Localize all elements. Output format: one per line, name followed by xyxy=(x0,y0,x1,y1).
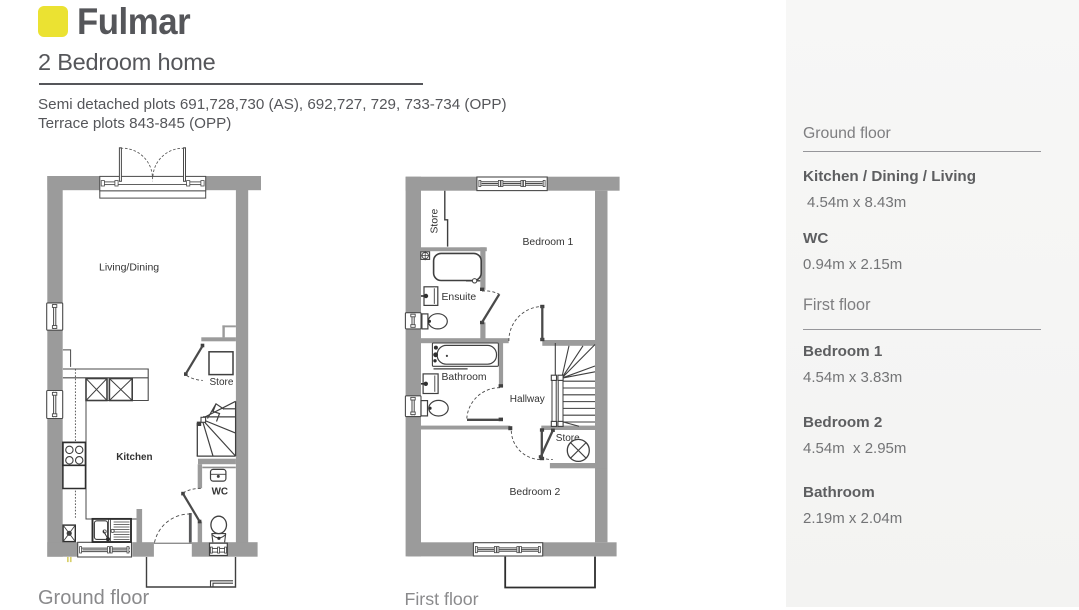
svg-text:WC: WC xyxy=(212,487,228,498)
svg-text:Store: Store xyxy=(210,377,234,388)
svg-text:Living/Dining: Living/Dining xyxy=(99,261,159,273)
svg-text:Bathroom: Bathroom xyxy=(442,372,487,383)
svg-text:Kitchen: Kitchen xyxy=(116,452,152,463)
svg-text:Bedroom 2: Bedroom 2 xyxy=(510,487,561,498)
svg-text:Hallway: Hallway xyxy=(510,394,545,405)
svg-text:Bedroom 1: Bedroom 1 xyxy=(523,237,574,248)
svg-text:Ensuite: Ensuite xyxy=(442,292,477,303)
svg-text:Store: Store xyxy=(430,208,441,233)
